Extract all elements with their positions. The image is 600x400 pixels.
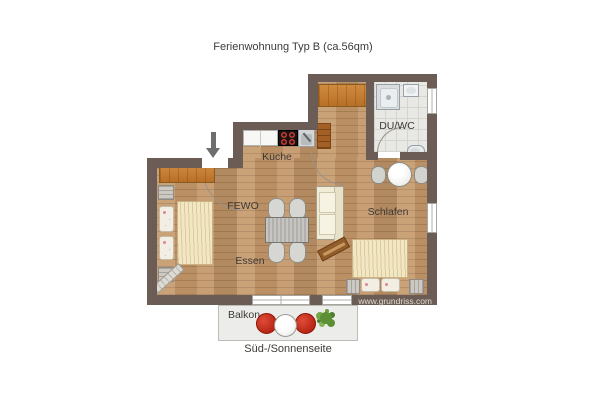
orientation-caption: Süd-/Sonnenseite xyxy=(244,343,331,355)
cabinet-divider xyxy=(260,131,261,147)
wall-entry-right xyxy=(228,158,243,168)
watermark: www.grundriss.com xyxy=(336,296,432,306)
shower-icon xyxy=(376,84,400,110)
window-bedroom xyxy=(427,203,437,233)
bathroom-label: DU/WC xyxy=(379,120,415,132)
pillow xyxy=(361,278,380,292)
dining-chair xyxy=(289,241,306,263)
wall-bathroom-bottom-a xyxy=(366,152,378,160)
floorplan-canvas: Ferienwohnung Typ B (ca.56qm) xyxy=(0,0,600,400)
kitchen-label: Küche xyxy=(262,151,292,163)
entrance-arrow-icon xyxy=(211,132,216,148)
kitchen-cabinets xyxy=(243,130,278,146)
double-bed-schlafen xyxy=(352,239,408,294)
burner-icon xyxy=(281,132,287,138)
duvet xyxy=(177,201,213,265)
round-table xyxy=(387,162,412,187)
pillow xyxy=(381,278,400,292)
burner-icon xyxy=(289,132,295,138)
bistro-chair xyxy=(371,166,386,184)
wall-top xyxy=(308,74,437,82)
washbasin-icon xyxy=(403,84,419,97)
balcony-chair-red xyxy=(295,313,316,334)
plan-title: Ferienwohnung Typ B (ca.56qm) xyxy=(213,41,372,53)
wall-kitchen-top xyxy=(233,122,318,130)
nightstand xyxy=(409,279,424,294)
balcony-table xyxy=(274,314,297,337)
window-south-large xyxy=(252,295,310,305)
dining-table xyxy=(265,217,309,243)
wardrobe xyxy=(318,84,367,107)
kitchen-sink xyxy=(298,129,315,147)
sofa-cushion xyxy=(319,192,336,213)
entrance-door-gap xyxy=(202,158,228,168)
kitchen-shelf xyxy=(317,123,331,149)
duvet xyxy=(352,239,408,278)
bedroom-label: Schlafen xyxy=(368,206,409,218)
basin-bowl xyxy=(406,87,416,94)
apartment-label: FEWO xyxy=(227,200,259,212)
sofa xyxy=(316,186,344,240)
wall-bathroom-left xyxy=(366,82,374,152)
wall-west xyxy=(147,158,157,305)
dining-chair xyxy=(268,241,285,263)
entrance-arrow-head-icon xyxy=(206,148,220,158)
nightstand xyxy=(158,185,174,200)
pillow xyxy=(159,206,174,232)
sofa-cushion xyxy=(319,214,336,235)
burner-icon xyxy=(289,139,295,145)
burner-icon xyxy=(281,139,287,145)
nightstand xyxy=(346,279,360,294)
pillow xyxy=(159,236,174,260)
wall-bathroom-bottom-b xyxy=(400,152,427,160)
window-bathroom xyxy=(427,88,437,114)
plant-icon xyxy=(320,312,332,324)
double-bed-living xyxy=(157,201,213,265)
dining-label: Essen xyxy=(235,255,264,267)
wall-upper-left xyxy=(308,74,318,122)
shower-drain xyxy=(386,95,391,100)
balcony-label: Balkon xyxy=(228,309,260,321)
